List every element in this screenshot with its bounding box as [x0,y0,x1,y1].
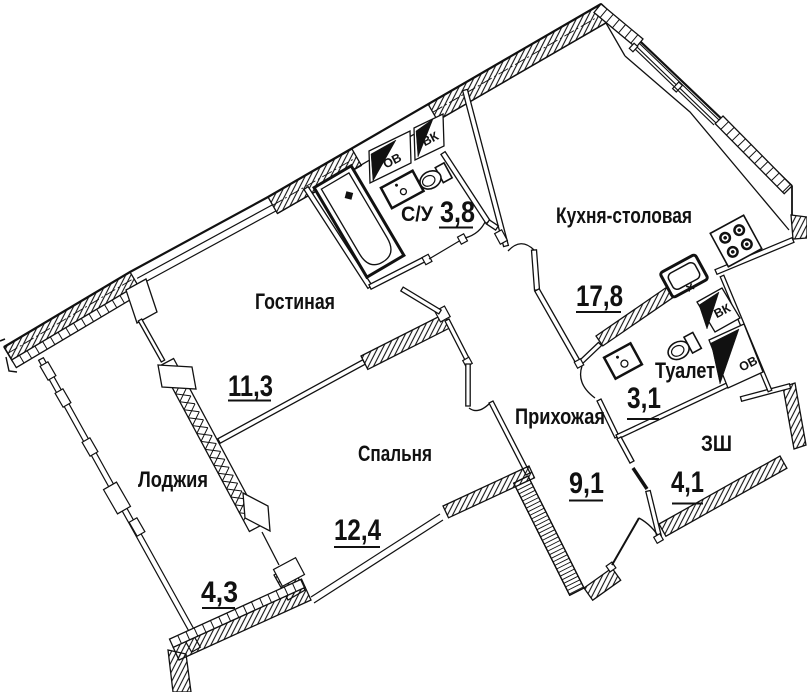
svg-text:4,1: 4,1 [671,466,704,499]
svg-text:11,3: 11,3 [228,370,273,403]
svg-text:Прихожая: Прихожая [515,404,605,429]
svg-text:17,8: 17,8 [576,280,623,313]
svg-text:Спальня: Спальня [358,441,432,466]
svg-text:4,3: 4,3 [201,576,238,609]
svg-text:Лоджия: Лоджия [138,467,208,492]
svg-text:Гостиная: Гостиная [255,289,335,314]
svg-text:12,4: 12,4 [334,514,381,547]
svg-text:3,8: 3,8 [440,196,475,229]
svg-text:ЗШ: ЗШ [701,431,732,456]
svg-text:9,1: 9,1 [569,467,604,500]
svg-text:3,1: 3,1 [627,382,661,415]
svg-text:Туалет: Туалет [655,358,715,383]
svg-text:С/У: С/У [401,203,434,226]
svg-text:Кухня-столовая: Кухня-столовая [556,203,692,228]
